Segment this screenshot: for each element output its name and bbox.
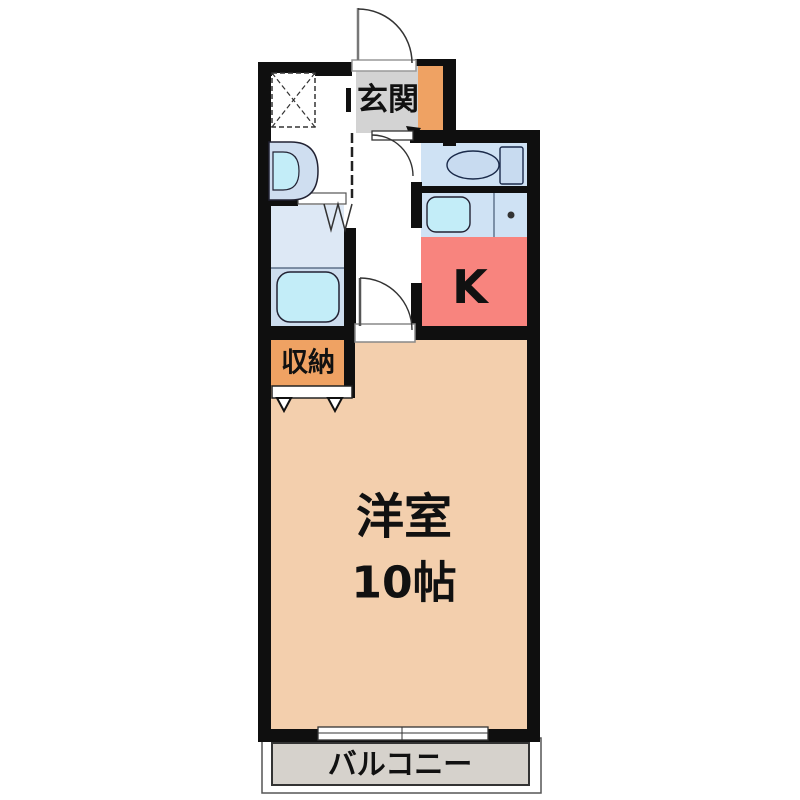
balcony-sliding-window xyxy=(318,727,488,740)
entrance-door-sill xyxy=(352,60,416,71)
wall-toilet-counter-divider xyxy=(421,186,527,193)
stove-knob-dot xyxy=(508,212,515,219)
washbasin-bowl xyxy=(273,152,299,190)
genkan-label: 玄関 xyxy=(357,82,419,118)
toilet-tank xyxy=(500,147,523,184)
wall-hallway-right-lower xyxy=(411,283,422,328)
entrance-step-tile xyxy=(418,64,443,133)
washing-machine-pan xyxy=(272,73,315,127)
floor-plan-canvas: 玄関 K 収納 洋室 10帖 バルコニー xyxy=(0,0,800,800)
floor-plan-page: 玄関 K 収納 洋室 10帖 バルコニー xyxy=(0,0,800,800)
mainroom-door-threshold xyxy=(355,324,415,342)
toilet-bowl xyxy=(447,151,499,179)
bathtub xyxy=(277,272,339,322)
storage-door-panel xyxy=(272,386,352,398)
wall-bathroom-right xyxy=(344,228,356,340)
main-room-size-label: 10帖 xyxy=(351,558,456,609)
wall-partition-mark xyxy=(346,88,351,112)
wall-hallway-right-upper xyxy=(411,182,422,228)
balcony-label: バルコニー xyxy=(328,747,472,781)
kitchen-label: K xyxy=(452,260,490,314)
kitchen-sink xyxy=(427,197,470,232)
bathroom-upper-floor xyxy=(271,205,344,268)
main-room-label: 洋室 xyxy=(356,489,452,545)
wall-toilet-top xyxy=(410,130,540,143)
wall-outer-right xyxy=(527,130,540,742)
storage-label: 収納 xyxy=(281,347,335,379)
